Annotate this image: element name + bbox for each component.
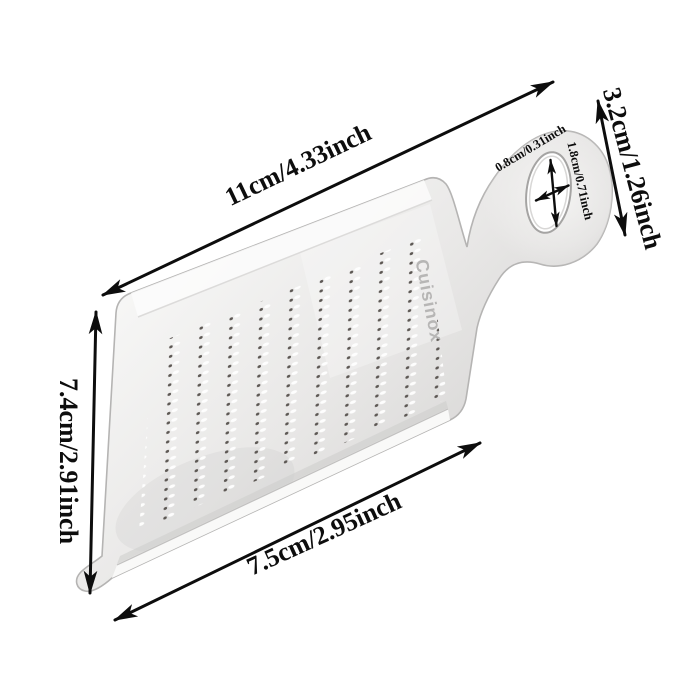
dim-arrow-left-height <box>90 312 96 593</box>
dim-label-top-edge: 11cm/4.33inch <box>220 117 376 212</box>
grater-dimension-diagram: Cuisinox 11cm/4.33inch 3.2cm/1.26inch 7.… <box>0 0 700 700</box>
dim-label-left-height: 7.4cm/2.91inch <box>54 378 83 545</box>
product-image: Cuisinox 11cm/4.33inch 3.2cm/1.26inch 7.… <box>0 0 700 700</box>
